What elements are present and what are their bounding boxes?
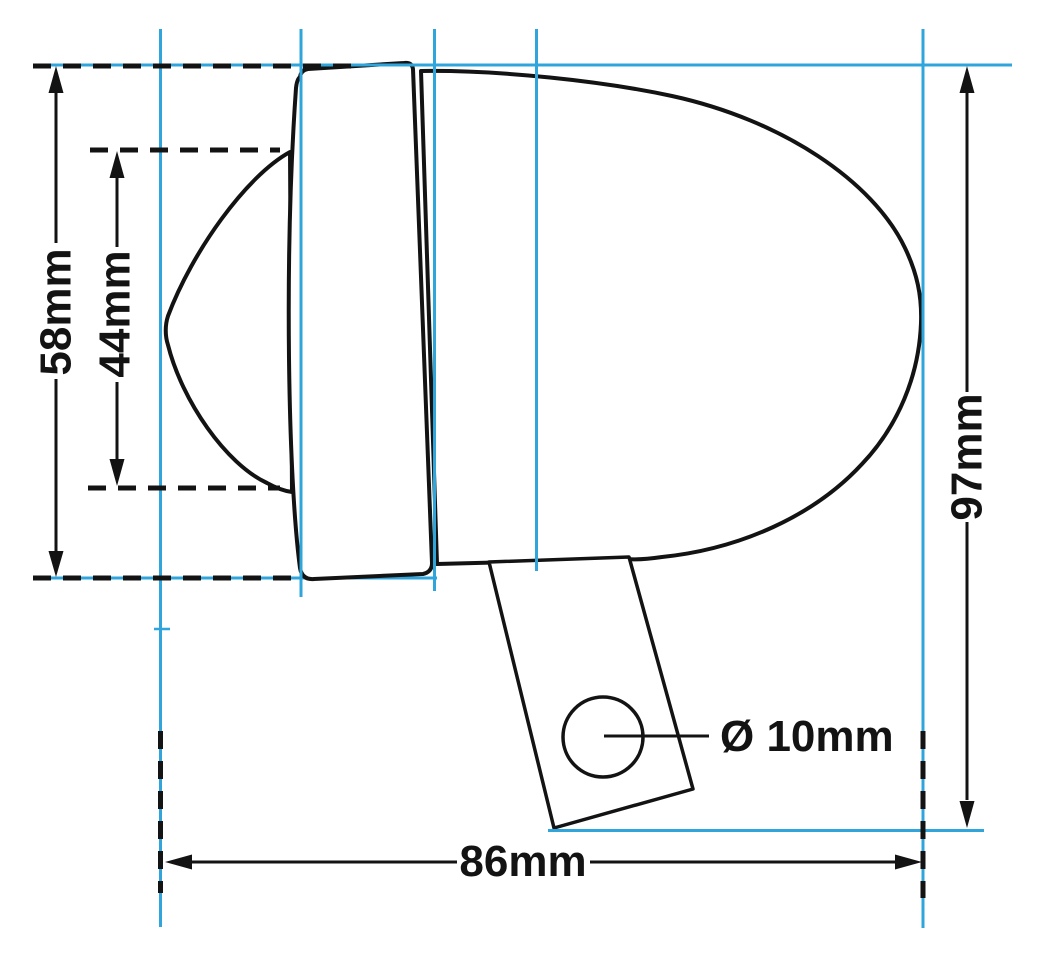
dimension-diagram: 58mm 44mm 97mm 86mm Ø 10mm (0, 0, 1047, 960)
label-bezel-height: 58mm (32, 248, 81, 375)
mount-bracket-outline (489, 557, 693, 828)
lens-cone-outline (166, 152, 292, 492)
arrow-58mm-up (49, 66, 64, 93)
bezel-outline (289, 63, 432, 579)
label-overall-width: 86mm (459, 837, 586, 886)
label-lens-diameter: 44mm (91, 250, 140, 377)
arrow-97mm-up (960, 66, 975, 93)
arrow-86mm-right (895, 855, 922, 870)
arrow-86mm-left (165, 855, 192, 870)
arrow-44mm-up (110, 151, 125, 178)
label-hole-diameter: Ø 10mm (720, 712, 894, 761)
arrow-97mm-down (960, 801, 975, 828)
label-overall-height: 97mm (943, 393, 992, 520)
housing-outline (421, 71, 921, 564)
technical-drawing-canvas: 58mm 44mm 97mm 86mm Ø 10mm (0, 0, 1047, 960)
arrow-44mm-down (110, 459, 125, 486)
arrow-58mm-down (49, 551, 64, 577)
